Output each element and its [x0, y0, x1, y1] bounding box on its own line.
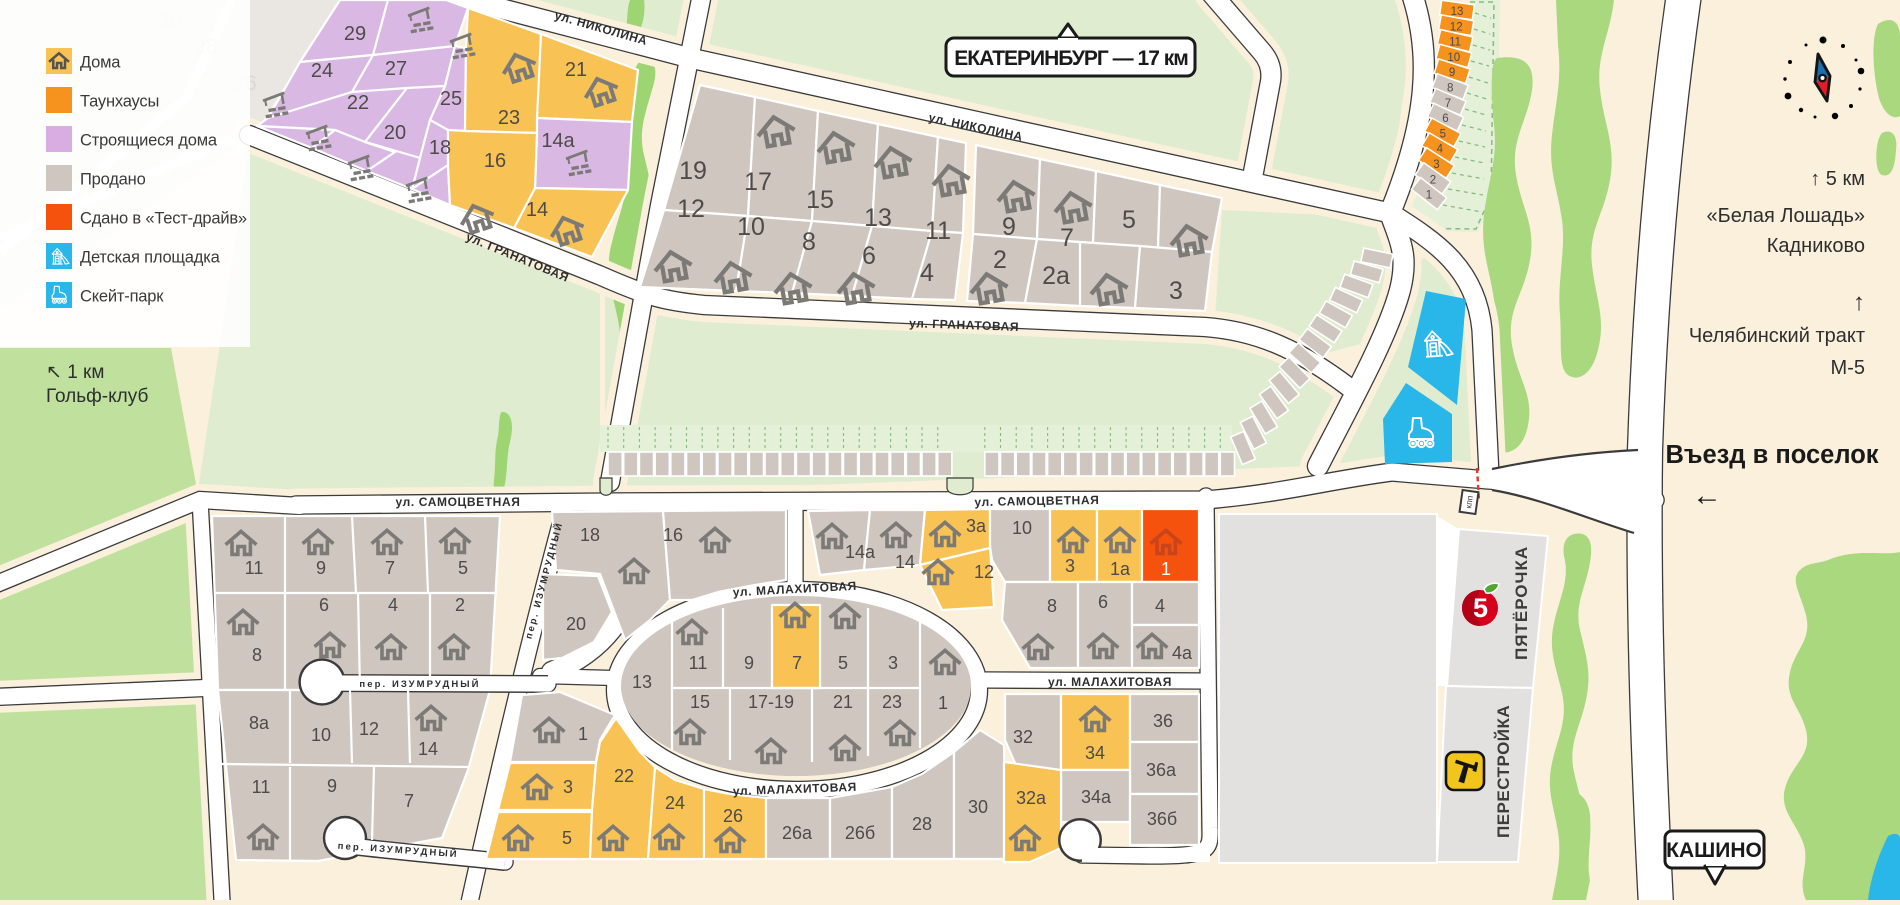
svg-text:23: 23	[498, 107, 520, 129]
svg-text:11: 11	[245, 558, 264, 578]
svg-text:28: 28	[912, 814, 932, 834]
svg-text:1: 1	[1426, 190, 1432, 202]
svg-text:4: 4	[920, 259, 934, 287]
svg-text:16: 16	[663, 525, 683, 545]
svg-text:36а: 36а	[1146, 760, 1177, 780]
svg-text:↖ 1 км: ↖ 1 км	[46, 362, 104, 383]
svg-text:8: 8	[252, 645, 262, 665]
svg-text:7: 7	[1060, 224, 1074, 252]
svg-text:9: 9	[744, 653, 754, 673]
svg-text:12: 12	[359, 719, 379, 739]
svg-text:2: 2	[455, 595, 465, 615]
svg-text:5: 5	[1122, 206, 1136, 234]
svg-text:1: 1	[578, 724, 588, 744]
svg-text:↑ 5 км: ↑ 5 км	[1810, 168, 1865, 190]
svg-text:29: 29	[344, 23, 366, 45]
svg-text:ПЯТЁРОЧКА: ПЯТЁРОЧКА	[1512, 546, 1531, 660]
svg-text:19: 19	[679, 157, 707, 185]
svg-text:5: 5	[562, 828, 572, 848]
svg-text:7: 7	[1445, 98, 1451, 110]
svg-text:«Белая Лошадь»: «Белая Лошадь»	[1706, 205, 1865, 227]
svg-text:12: 12	[974, 562, 994, 582]
svg-text:22: 22	[614, 766, 634, 786]
svg-text:15: 15	[806, 186, 834, 214]
svg-text:1а: 1а	[1110, 559, 1131, 579]
svg-text:3: 3	[1169, 277, 1183, 305]
svg-text:14а: 14а	[541, 130, 575, 152]
svg-text:4: 4	[1437, 144, 1444, 156]
svg-text:24: 24	[311, 60, 333, 82]
svg-text:22: 22	[347, 92, 369, 114]
svg-text:13: 13	[864, 204, 892, 232]
svg-text:10: 10	[737, 213, 765, 241]
svg-text:13: 13	[632, 672, 652, 692]
svg-text:ул. САМОЦВЕТНАЯ: ул. САМОЦВЕТНАЯ	[396, 495, 521, 509]
svg-text:20: 20	[566, 614, 586, 634]
svg-text:3: 3	[888, 653, 898, 673]
svg-text:27: 27	[385, 58, 407, 80]
svg-text:21: 21	[565, 59, 587, 81]
svg-text:8а: 8а	[249, 713, 270, 733]
svg-text:КАШИНО: КАШИНО	[1666, 839, 1762, 862]
svg-text:2а: 2а	[1042, 262, 1070, 290]
svg-text:5: 5	[1473, 593, 1488, 623]
svg-text:9: 9	[1449, 67, 1455, 79]
svg-text:8: 8	[802, 228, 816, 256]
svg-text:3: 3	[563, 777, 573, 797]
svg-text:7: 7	[792, 653, 802, 673]
svg-text:Детская площадка: Детская площадка	[80, 249, 221, 267]
svg-text:15: 15	[690, 692, 710, 712]
svg-text:11: 11	[925, 217, 951, 245]
svg-text:5: 5	[838, 653, 848, 673]
svg-text:ул. МАЛАХИТОВАЯ: ул. МАЛАХИТОВАЯ	[1048, 675, 1172, 689]
svg-text:30: 30	[968, 797, 988, 817]
svg-text:4: 4	[1155, 596, 1165, 616]
svg-text:26б: 26б	[845, 823, 875, 843]
svg-text:14: 14	[895, 552, 915, 572]
svg-text:24: 24	[665, 793, 685, 813]
svg-text:↑: ↑	[1853, 289, 1865, 316]
svg-text:34: 34	[1085, 743, 1105, 763]
svg-text:18: 18	[580, 525, 600, 545]
svg-text:17-19: 17-19	[748, 692, 794, 712]
svg-text:34а: 34а	[1081, 787, 1112, 807]
svg-text:10: 10	[1012, 518, 1032, 538]
svg-text:7: 7	[385, 558, 395, 578]
svg-text:3: 3	[1065, 556, 1075, 576]
svg-text:Продано: Продано	[80, 171, 146, 189]
svg-text:36б: 36б	[1147, 809, 1177, 829]
svg-text:36: 36	[1153, 711, 1173, 731]
svg-text:25: 25	[440, 88, 462, 110]
svg-text:1: 1	[1161, 559, 1171, 579]
svg-text:8: 8	[1447, 83, 1453, 95]
svg-text:6: 6	[862, 242, 876, 270]
svg-text:11: 11	[689, 653, 708, 673]
svg-text:6: 6	[1098, 592, 1108, 612]
svg-text:Дома: Дома	[80, 54, 121, 72]
svg-text:Кадниково: Кадниково	[1767, 235, 1865, 257]
svg-text:5: 5	[458, 558, 468, 578]
svg-text:14а: 14а	[845, 542, 876, 562]
svg-text:18: 18	[429, 137, 451, 159]
svg-text:26: 26	[723, 806, 743, 826]
svg-text:ул. САМОЦВЕТНАЯ: ул. САМОЦВЕТНАЯ	[974, 493, 1099, 509]
svg-text:14: 14	[418, 739, 438, 759]
svg-text:Скейт-парк: Скейт-парк	[80, 288, 164, 306]
svg-text:ПЕРЕСТРОЙКА: ПЕРЕСТРОЙКА	[1494, 705, 1513, 838]
svg-text:Строящиеся дома: Строящиеся дома	[80, 132, 218, 150]
svg-text:6: 6	[319, 595, 329, 615]
svg-text:Челябинский тракт: Челябинский тракт	[1689, 325, 1865, 347]
svg-text:12: 12	[677, 195, 705, 223]
svg-text:11: 11	[252, 777, 271, 797]
svg-text:10: 10	[311, 725, 331, 745]
svg-text:←: ←	[1692, 479, 1722, 512]
svg-text:23: 23	[882, 692, 902, 712]
svg-text:20: 20	[384, 122, 406, 144]
svg-text:Сдано в «Тест-драйв»: Сдано в «Тест-драйв»	[80, 210, 247, 228]
svg-text:Таунхаусы: Таунхаусы	[80, 93, 159, 111]
svg-text:3а: 3а	[966, 516, 987, 536]
svg-text:26а: 26а	[782, 823, 813, 843]
svg-text:кпп: кпп	[1463, 495, 1475, 510]
svg-text:4: 4	[388, 595, 398, 615]
svg-text:14: 14	[526, 199, 548, 221]
svg-text:Въезд в поселок: Въезд в поселок	[1665, 441, 1878, 469]
svg-text:13: 13	[1451, 6, 1464, 18]
svg-text:7: 7	[404, 791, 414, 811]
svg-text:9: 9	[316, 558, 326, 578]
svg-text:32: 32	[1013, 727, 1033, 747]
svg-text:пер. ИЗУМРУДНЫЙ: пер. ИЗУМРУДНЫЙ	[359, 678, 480, 690]
svg-text:4а: 4а	[1172, 643, 1193, 663]
svg-text:9: 9	[1002, 213, 1016, 241]
svg-text:21: 21	[833, 692, 853, 712]
svg-text:8: 8	[1047, 596, 1057, 616]
svg-text:ЕКАТЕРИНБУРГ — 17 км: ЕКАТЕРИНБУРГ — 17 км	[954, 47, 1188, 70]
svg-text:16: 16	[484, 150, 506, 172]
svg-text:2: 2	[993, 246, 1007, 274]
svg-text:32а: 32а	[1016, 788, 1047, 808]
svg-text:Гольф-клуб: Гольф-клуб	[46, 386, 148, 407]
svg-text:9: 9	[327, 776, 337, 796]
svg-text:17: 17	[744, 168, 772, 196]
svg-text:М-5: М-5	[1831, 357, 1865, 379]
svg-text:1: 1	[938, 693, 948, 713]
